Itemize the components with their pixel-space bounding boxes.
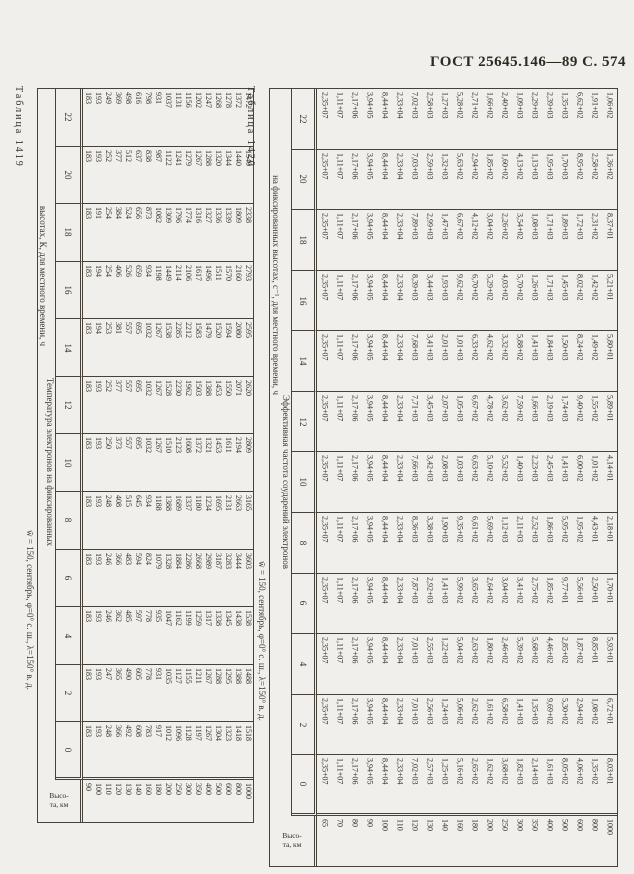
value-text: 366 [114,725,122,737]
height-text: 120 [411,819,419,831]
value-cell: 1,84+03 [542,331,557,391]
value-text: 183 [84,610,92,622]
value-text: 1,11+07 [336,758,344,784]
value-text: 1,66+02 [486,92,494,119]
value-cell: 5,52+02 [497,452,512,512]
value-cell: 2,18+01 [602,513,617,573]
hour-label: 4 [63,633,73,638]
value-text: 3,94+05 [366,698,374,725]
hour-label: 2 [63,691,73,696]
value-cell: 524 [123,204,133,261]
value-cell: 1388 [233,665,243,722]
value-cell: 5,10+02 [482,452,497,512]
value-text: 2,35+07 [321,92,329,119]
value-text: 873 [144,207,152,219]
value-cell: 2,94+02 [572,695,587,755]
value-cell: 1162 [173,607,183,664]
value-text: 1,71+03 [546,274,554,301]
hour-label-cell: 4 [56,607,83,665]
value-cell: 362 [113,607,123,664]
value-cell: 1774 [183,204,193,261]
hour-label: 18 [63,228,73,237]
value-text: 1418 [234,725,242,741]
value-cell: 1,90+03 [437,513,452,573]
value-text: 1234 [204,495,212,511]
value-cell: 6,70+02 [467,271,482,331]
value-text: 1,08+03 [531,213,539,240]
hour-label: 16 [63,286,73,295]
hour-label: 16 [298,296,308,305]
value-text: 1338 [214,610,222,626]
value-text: 2,92+03 [426,577,434,604]
height-text: 600 [576,819,584,831]
value-cell: 183 [83,434,93,491]
value-text: 1345 [224,610,232,626]
value-cell: 194 [93,262,103,319]
value-text: 183 [84,668,92,680]
value-text: 1037 [164,92,172,108]
value-text: 5,70+02 [516,274,524,301]
value-text: 934 [144,265,152,277]
height-text: 110 [104,783,112,795]
value-cell: 183 [83,550,93,607]
value-cell: 1,13+03 [527,150,542,210]
value-cell: 7,89+03 [407,210,422,270]
value-text: 183 [84,265,92,277]
value-cell: 659 [133,262,143,319]
value-cell: 2,33+04 [392,452,407,512]
value-text: 3,04+02 [501,577,509,604]
value-cell: 3,68+02 [497,755,512,813]
value-text: 1,11+07 [336,153,344,179]
value-text: 2,17+06 [351,516,359,543]
height-cell: 250 [497,816,512,866]
value-text: 7,66+03 [411,455,419,482]
value-cell: 557 [123,319,133,376]
value-cell: 2,17+06 [347,695,362,755]
value-cell: 1267 [193,147,203,204]
value-text: 1079 [154,553,162,569]
value-text: 1199 [184,610,192,626]
height-cell: 80 [347,816,362,866]
value-text: 659 [134,265,142,277]
value-cell: 6,62+02 [572,89,587,149]
hour-label: 0 [63,747,73,752]
height-text: 800 [591,819,599,831]
value-cell: 4,43+01 [587,513,602,573]
value-cell: 3,94+05 [362,331,377,391]
value-text: 1,49+02 [591,334,599,361]
value-text: 1689 [174,495,182,511]
value-text: 1,35+02 [591,758,599,785]
value-text: 4,62+02 [486,334,494,361]
value-cell: 1503 [193,377,203,434]
value-cell: 1,70+01 [602,574,617,634]
value-text: 594 [134,553,142,565]
value-cell: 8,44+04 [377,331,392,391]
height-cell: 100 [93,780,103,822]
value-text: 1241 [174,150,182,166]
value-cell: 1962 [183,377,193,434]
value-cell: 1180 [193,492,203,549]
value-cell: 7,66+03 [407,452,422,512]
value-text: 2,71+02 [471,92,479,119]
value-cell: 8,44+04 [377,452,392,512]
value-text: 3,94+05 [366,577,374,604]
value-cell: 1234 [203,492,213,549]
value-text: 2160 [234,265,242,281]
height-cell: 100 [377,816,392,866]
value-text: 1503 [194,380,202,396]
value-text: 253 [104,322,112,334]
value-text: 3,54+02 [516,213,524,240]
value-cell: 183 [83,89,93,146]
value-cell: 2,33+04 [392,755,407,813]
value-cell: 1188 [153,492,163,549]
value-text: 931 [154,668,162,680]
value-cell: 1,41+03 [437,574,452,634]
value-text: 366 [114,553,122,565]
value-cell: 8,44+04 [377,755,392,813]
value-cell: 2,35+07 [317,271,332,331]
value-cell: 2194 [233,434,243,491]
value-text: 1496 [204,265,212,281]
value-cell: 194 [93,319,103,376]
value-text: 2,35+07 [321,698,329,725]
value-text: 2071 [234,380,242,396]
value-text: 2,63+02 [471,637,479,664]
value-text: 2,33+04 [396,758,404,785]
value-text: 1211 [194,668,202,684]
value-text: 934 [144,495,152,507]
value-text: 2285 [174,322,182,338]
value-cell: 2,33+04 [392,89,407,149]
value-text: 2,64+02 [486,577,494,604]
table-caption: Таблица 1420 [245,86,256,168]
value-cell: 5,39+02 [512,634,527,694]
value-text: 1162 [174,610,182,626]
value-cell: 824 [143,550,153,607]
corner-line2: та, км [283,841,302,850]
height-cell: 200 [163,780,173,822]
data-band-hour-20: 1831932523775126378389871122124112791267… [83,147,253,205]
value-text: 798 [144,92,152,104]
height-cell: 120 [113,780,123,822]
value-text: 515 [124,495,132,507]
value-text: 2,57+03 [426,758,434,785]
height-text: 65 [321,819,329,827]
value-cell: 5,16+02 [452,755,467,813]
value-text: 3,94+05 [366,637,374,664]
hour-label: 12 [298,417,308,426]
value-cell: 492 [123,722,133,777]
value-text: 935 [154,610,162,622]
hour-label-cell: 6 [56,550,83,608]
value-text: 5,29+02 [486,274,494,301]
value-text: 1,50+03 [561,334,569,361]
value-text: 1,89+03 [561,213,569,240]
value-text: 4,43+01 [591,516,599,543]
value-cell: 2,17+06 [347,210,362,270]
value-text: 5,39+02 [516,637,524,664]
value-text: 1372 [194,437,202,453]
value-text: 3,94+05 [366,758,374,785]
value-text: 2080 [234,322,242,338]
value-cell: 191 [93,204,103,261]
value-text: 1032 [144,437,152,453]
value-text: 1,22+03 [441,637,449,664]
value-text: 1,26+03 [531,274,539,301]
value-text: 369 [114,92,122,104]
value-text: 1617 [194,265,202,281]
data-band-hour-20: 2,35+071,11+072,17+063,94+058,44+042,33+… [317,150,617,211]
value-cell: 1884 [173,550,183,607]
value-cell: 1321 [203,434,213,491]
value-cell: 5,95+02 [557,513,572,573]
value-cell: 1,89+03 [557,210,572,270]
table-title-cell: Эффективная частота соударений электроно… [270,89,292,816]
value-cell: 597 [133,607,143,664]
value-cell: 1339 [223,204,233,261]
value-cell: 377 [113,377,123,434]
height-text: 160 [456,819,464,831]
value-cell: 8,44+04 [377,574,392,634]
value-text: 8,05+02 [561,758,569,785]
value-text: 498 [124,92,132,104]
height-cell: 160 [452,816,467,866]
value-cell: 3,44+03 [422,271,437,331]
value-cell: 8,44+04 [377,695,392,755]
value-cell: 2,17+06 [347,755,362,813]
value-text: 1,08+02 [591,698,599,725]
value-cell: 193 [93,607,103,664]
value-cell: 605 [133,665,143,722]
value-text: 193 [94,437,102,449]
value-text: 2,19+03 [546,395,554,422]
value-text: 7,01+03 [411,637,419,664]
value-cell: 2,58+02 [587,150,602,210]
value-cell: 2,58+03 [422,89,437,149]
table-title-cell: Температура электронов на фиксированных … [38,89,56,780]
value-cell: 2212 [183,319,193,376]
value-text: 1388 [234,668,242,684]
value-text: 1180 [194,495,202,511]
value-text: 1884 [174,553,182,569]
value-text: 249 [104,92,112,104]
table-title-line1: Эффективная частота соударений электроно… [281,395,291,569]
value-cell: 1510 [163,434,173,491]
value-cell: 183 [83,319,93,376]
height-cell: 400 [203,780,213,822]
value-cell: 9,35+02 [452,513,467,573]
value-cell: 7,71+03 [407,392,422,452]
value-cell: 5,93+01 [602,634,617,694]
value-cell: 3,65+02 [467,574,482,634]
height-cell: 600 [223,780,233,822]
hour-label: 18 [298,235,308,244]
value-text: 1309 [164,207,172,223]
value-text: 1288 [214,668,222,684]
value-text: 3187 [214,553,222,569]
value-cell: 4,12+02 [467,210,482,270]
value-text: 3,42+03 [426,455,434,482]
value-cell: 1,36+02 [602,150,617,210]
value-text: 1,01+03 [456,334,464,361]
value-text: 2,45+03 [546,455,554,482]
hour-label-cell: 14 [56,319,83,377]
value-cell: 1279 [183,147,193,204]
value-text: 6,58+02 [501,698,509,725]
value-cell: 2,33+04 [392,574,407,634]
hour-label: 4 [298,662,308,667]
value-text: 2,11+03 [516,516,524,542]
value-text: 3,44+03 [426,274,434,301]
value-text: 1267 [194,150,202,166]
value-text: 1267 [154,437,162,453]
hour-label-cell: 8 [56,492,83,550]
value-cell: 2114 [173,262,183,319]
value-cell: 3,94+05 [362,392,377,452]
value-cell: 247 [103,665,113,722]
value-cell: 384 [113,204,123,261]
hour-label: 10 [298,478,308,487]
value-cell: 2,35+07 [317,513,332,573]
value-cell: 2,55+03 [422,634,437,694]
value-text: 2114 [174,265,182,281]
data-band-hour-18: 2,35+071,11+072,17+063,94+058,44+042,33+… [317,210,617,271]
value-cell: 1372 [193,434,203,491]
value-text: 1,11+07 [336,213,344,239]
value-text: 362 [114,610,122,622]
value-text: 8,44+04 [381,698,389,725]
height-text: 80 [351,819,359,827]
value-cell: 3,94+05 [362,150,377,210]
value-text: 1267 [154,380,162,396]
hour-label: 14 [63,343,73,352]
value-cell: 2,45+03 [542,452,557,512]
value-cell: 778 [143,665,153,722]
value-cell: 2,26+02 [497,210,512,270]
value-cell: 7,01+03 [407,695,422,755]
hour-label: 20 [298,175,308,184]
hour-label: 8 [63,518,73,523]
value-cell: 1,12+03 [497,513,512,573]
value-cell: 254 [103,204,113,261]
value-cell: 1496 [203,262,213,319]
value-cell: 935 [153,607,163,664]
value-text: 1,47+03 [441,213,449,240]
caption-column: Таблица 1419 [13,88,25,823]
value-text: 5,21+01 [606,274,614,301]
value-cell: 8,44+04 [377,513,392,573]
value-cell: 5,63+02 [452,150,467,210]
height-text: 100 [94,783,102,795]
value-cell: 1337 [183,492,193,549]
value-text: 1295 [224,668,232,684]
value-text: 248 [104,495,112,507]
value-cell: 2285 [173,319,183,376]
value-text: 3283 [224,553,232,569]
value-text: 1,61+03 [546,758,554,785]
value-text: 8,44+04 [381,153,389,180]
height-text: 70 [336,819,344,827]
value-text: 2,35+07 [321,758,329,785]
value-text: 5,30+02 [561,698,569,725]
value-text: 1,70+03 [561,153,569,180]
value-text: 2,17+06 [351,758,359,785]
value-cell: 2,14+03 [527,755,542,813]
value-text: 1594 [224,322,232,338]
value-text: 1,70+01 [606,577,614,604]
value-text: 191 [94,207,102,219]
value-text: 9,35+02 [456,516,464,543]
value-text: 1,11+07 [336,395,344,421]
value-cell: 4,06+02 [572,755,587,813]
value-cell: 1037 [163,89,173,146]
data-band-hour-12: 1831932523775576951032126715282230196215… [83,377,253,435]
value-cell: 8,05+02 [557,755,572,813]
value-text: 1,06+02 [606,92,614,119]
value-cell: 1,47+03 [437,210,452,270]
value-cell: 2,33+04 [392,150,407,210]
value-text: 1122 [164,150,172,166]
value-cell: 931 [153,89,163,146]
value-cell: 252 [103,147,113,204]
value-cell: 1338 [213,607,223,664]
value-text: 1188 [154,495,162,511]
value-text: 1479 [204,322,212,338]
value-text: 2,39+03 [546,92,554,119]
value-text: 8,44+04 [381,577,389,604]
value-text: 1,12+03 [501,516,509,543]
value-cell: 1440 [233,147,243,204]
value-cell: 2,33+04 [392,271,407,331]
value-text: 193 [94,380,102,392]
value-cell: 485 [123,607,133,664]
value-cell: 1,32+03 [437,150,452,210]
value-cell: 183 [83,262,93,319]
value-cell: 1,41+03 [527,331,542,391]
value-text: 1267 [204,668,212,684]
value-text: 1,62+02 [486,758,494,785]
value-text: 1082 [154,207,162,223]
height-cell: 110 [392,816,407,866]
height-cell: 800 [233,780,243,822]
value-cell: 2,33+04 [392,210,407,270]
value-cell: 5,06+02 [452,695,467,755]
height-cell: 350 [193,780,203,822]
value-cell: 373 [113,434,123,491]
value-text: 1,84+03 [546,334,554,361]
value-text: 1320 [214,150,222,166]
value-cell: 6,61+02 [467,513,482,573]
value-cell: 5,04+02 [452,634,467,694]
value-cell: 1453 [213,377,223,434]
value-text: 1,35+03 [561,92,569,119]
value-cell: 2,62+02 [467,695,482,755]
value-cell: 1,45+03 [557,271,572,331]
value-cell: 1288 [213,665,223,722]
value-cell: 1,85+02 [542,574,557,634]
value-text: 1278 [224,92,232,108]
value-cell: 1320 [213,147,223,204]
value-cell: 8,95+02 [572,150,587,210]
value-cell: 1,35+03 [527,695,542,755]
value-text: 3,65+02 [471,577,479,604]
value-cell: 4,13+02 [512,150,527,210]
value-text: 7,71+03 [411,395,419,422]
value-text: 2,33+04 [396,637,404,664]
